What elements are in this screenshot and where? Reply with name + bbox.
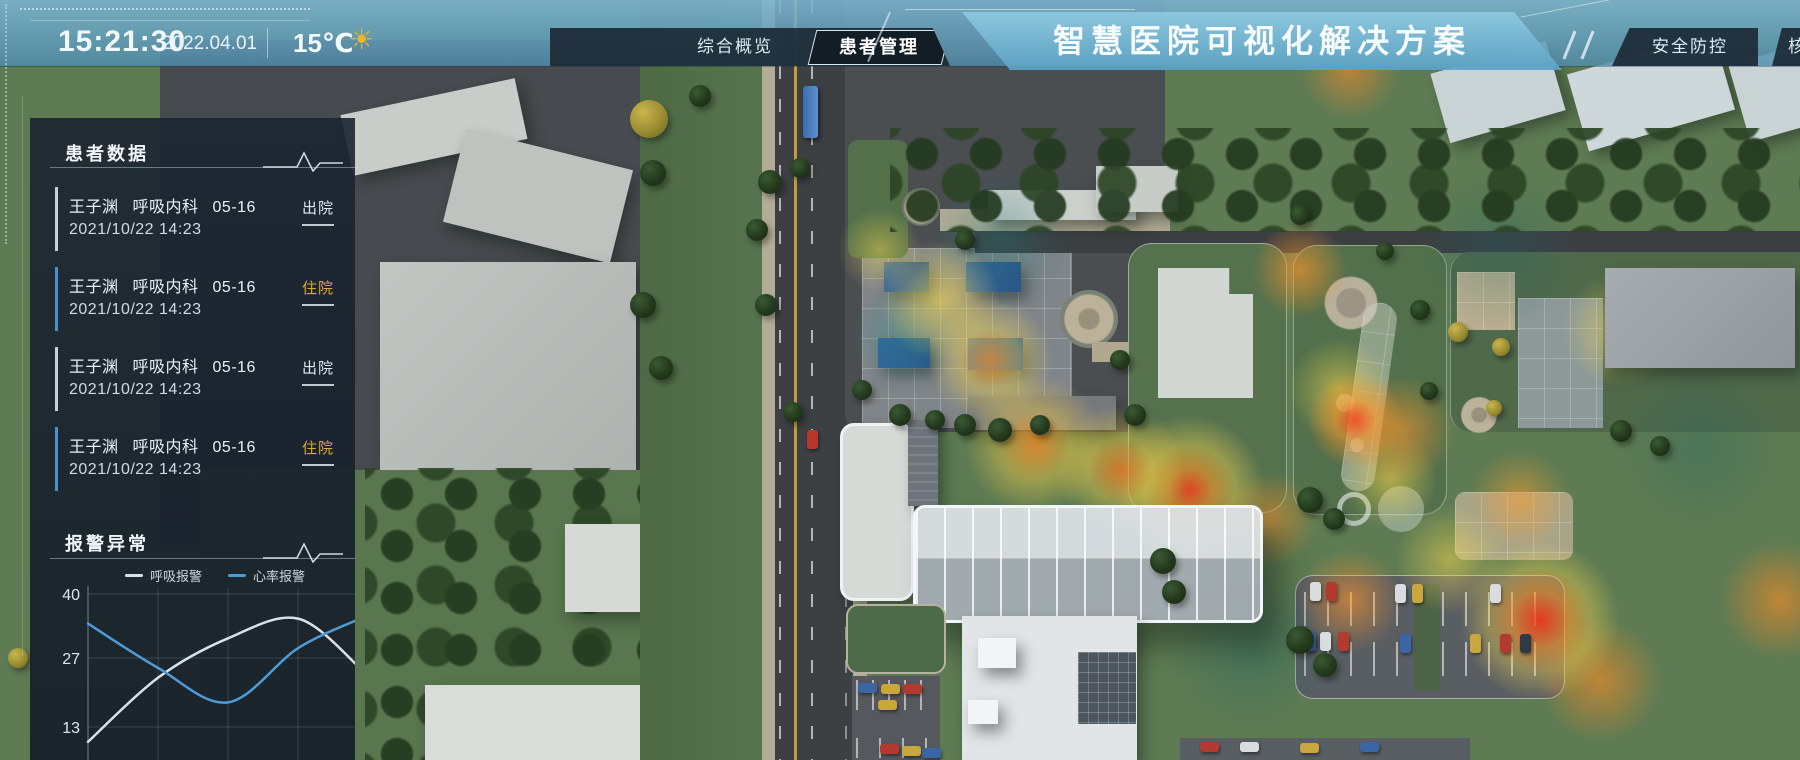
temperature-value: 15℃ <box>293 28 353 59</box>
map-building-l <box>1605 268 1795 368</box>
svg-text:40: 40 <box>62 587 80 604</box>
patient-time: 2021/10/22 14:23 <box>69 221 202 239</box>
patient-name: 王子渊 <box>69 199 119 216</box>
patient-dept: 呼吸内科 <box>133 359 199 376</box>
map-tree <box>1610 420 1632 442</box>
map-tree <box>1030 415 1050 435</box>
patient-list-item[interactable]: 王子渊呼吸内科05-16 2021/10/22 14:23 出院 <box>55 185 340 253</box>
decor-line <box>905 9 1135 10</box>
nav-bar-left: 综合概览 患者管理 <box>550 28 950 66</box>
map-car <box>1200 742 1219 752</box>
map-car <box>1490 584 1501 603</box>
patient-name: 王子渊 <box>69 279 119 296</box>
map-tree <box>1420 382 1438 400</box>
map-tree <box>1124 404 1146 426</box>
map-tree <box>852 380 872 400</box>
status-badge: 住院 <box>302 437 334 466</box>
clock-date: 2022.04.01 <box>162 33 257 55</box>
patient-dept: 呼吸内科 <box>133 199 199 216</box>
map-tree <box>1313 653 1337 677</box>
decor-line <box>1521 0 1610 18</box>
map-tile-lot <box>1455 492 1573 560</box>
left-data-panel: 患者数据 王子渊呼吸内科05-16 2021/10/22 14:23 出院 王子… <box>30 118 355 760</box>
map-tree <box>1323 508 1345 530</box>
ecg-pulse-icon <box>263 150 343 172</box>
map-tree <box>790 158 810 178</box>
map-car <box>1320 632 1331 651</box>
map-tile-grid <box>1518 298 1603 428</box>
map-car <box>1470 634 1481 653</box>
status-badge: 住院 <box>302 277 334 306</box>
tab-security[interactable]: 安全防控 <box>1630 28 1750 66</box>
decor-dotted-line <box>20 8 310 10</box>
map-tree <box>1376 242 1394 260</box>
map-car <box>1395 584 1406 603</box>
map-tree <box>649 356 673 380</box>
map-building-main <box>962 616 1137 760</box>
map-car <box>1310 582 1321 601</box>
map-tree <box>755 294 777 316</box>
map-woods-north <box>890 128 1800 232</box>
patient-bed: 05-16 <box>213 279 256 296</box>
patient-time: 2021/10/22 14:23 <box>69 381 202 399</box>
title-banner: 智慧医院可视化解决方案 <box>962 12 1562 70</box>
map-car <box>858 683 877 693</box>
nav-bar-right: 安全防控 <box>1612 28 1758 66</box>
map-tree-yellow <box>1492 338 1510 356</box>
map-tree-yellow <box>1486 400 1502 416</box>
map-car <box>1338 632 1349 651</box>
map-tree-yellow <box>630 100 668 138</box>
nav-bar-right-edge: 核 <box>1772 28 1800 66</box>
map-building-tower <box>908 420 938 506</box>
map-tree <box>988 418 1012 442</box>
ecg-pulse-icon <box>263 541 343 563</box>
tab-clipped[interactable]: 核 <box>1788 28 1800 66</box>
map-car <box>1500 634 1511 653</box>
map-tree <box>746 219 768 241</box>
top-header-bar: 15:21:30 2022.04.01 15℃ ☀ 综合概览 患者管理 智慧医院… <box>0 0 1800 66</box>
patient-list-item[interactable]: 王子渊呼吸内科05-16 2021/10/22 14:23 出院 <box>55 345 340 413</box>
map-tree <box>955 230 975 250</box>
map-fountain <box>1060 290 1118 348</box>
map-tree <box>925 410 945 430</box>
legend-dash-icon <box>228 574 246 577</box>
map-tree <box>1162 580 1186 604</box>
alarm-section-title: 报警异常 <box>65 530 149 556</box>
map-tree <box>1297 487 1323 513</box>
patient-bed: 05-16 <box>213 439 256 456</box>
status-badge: 出院 <box>302 357 334 386</box>
map-car <box>922 748 941 758</box>
map-tree <box>889 404 911 426</box>
map-building-slab-outlined <box>840 423 914 601</box>
status-badge: 出院 <box>302 197 334 226</box>
item-accent-bar <box>55 427 58 491</box>
alarm-line-chart: 402713 <box>30 580 355 760</box>
map-tree <box>1150 548 1176 574</box>
map-tree <box>1650 436 1670 456</box>
item-accent-bar <box>55 187 58 251</box>
map-tree <box>1410 300 1430 320</box>
map-tree <box>630 292 656 318</box>
decor-slash <box>1580 31 1594 60</box>
map-car <box>880 744 899 754</box>
map-solar-panel <box>966 262 1021 292</box>
patient-list-item[interactable]: 王子渊呼吸内科05-16 2021/10/22 14:23 住院 <box>55 425 340 493</box>
map-car <box>1412 584 1423 603</box>
patient-bed: 05-16 <box>213 359 256 376</box>
map-tree <box>783 402 803 422</box>
map-tree <box>689 85 711 107</box>
tab-overview[interactable]: 综合概览 <box>680 28 790 66</box>
decor-dotted-vline <box>5 4 7 244</box>
map-building <box>380 262 636 474</box>
map-car <box>878 700 897 710</box>
decor-vline <box>22 96 23 656</box>
map-car <box>881 684 900 694</box>
map-tree <box>1110 350 1130 370</box>
legend-dash-icon <box>125 574 143 577</box>
map-tree-yellow <box>8 648 28 668</box>
map-tree <box>1290 205 1310 225</box>
map-bus <box>803 86 818 138</box>
map-tree <box>758 170 782 194</box>
map-park <box>1293 245 1447 515</box>
decor-line <box>30 20 310 21</box>
map-playground-circle <box>1378 486 1424 532</box>
patient-bed: 05-16 <box>213 199 256 216</box>
page-title: 智慧医院可视化解决方案 <box>962 12 1562 70</box>
map-car <box>1326 582 1337 601</box>
map-car <box>1360 742 1379 752</box>
patient-dept: 呼吸内科 <box>133 279 199 296</box>
item-accent-bar <box>55 347 58 411</box>
smart-hospital-dashboard: 15:21:30 2022.04.01 15℃ ☀ 综合概览 患者管理 智慧医院… <box>0 0 1800 760</box>
patient-name: 王子渊 <box>69 439 119 456</box>
map-building-glass-canopy[interactable] <box>913 505 1263 623</box>
map-tree-yellow <box>1448 322 1468 342</box>
map-car <box>1300 743 1319 753</box>
map-car <box>1400 634 1411 653</box>
patient-time: 2021/10/22 14:23 <box>69 301 202 319</box>
map-solar-panel <box>968 338 1023 370</box>
map-tree <box>1286 626 1314 654</box>
map-solar-panel <box>884 262 929 292</box>
map-car <box>1520 634 1531 653</box>
map-solar-panel <box>878 338 930 368</box>
patient-data-title: 患者数据 <box>65 140 149 166</box>
patient-list-item[interactable]: 王子渊呼吸内科05-16 2021/10/22 14:23 住院 <box>55 265 340 333</box>
item-accent-bar <box>55 267 58 331</box>
patient-name: 王子渊 <box>69 359 119 376</box>
map-tile-square <box>1457 272 1515 330</box>
decor-slash <box>1562 31 1576 60</box>
patient-time: 2021/10/22 14:23 <box>69 461 202 479</box>
map-car <box>902 746 921 756</box>
map-car <box>807 430 818 449</box>
map-car <box>903 684 922 694</box>
header-divider <box>267 28 268 58</box>
map-car <box>1240 742 1259 752</box>
map-building <box>425 685 671 760</box>
map-parking-strip <box>1180 738 1470 760</box>
map-tree <box>640 160 666 186</box>
map-tree <box>954 414 976 436</box>
patient-dept: 呼吸内科 <box>133 439 199 456</box>
map-grass-knoll <box>846 604 946 674</box>
svg-text:13: 13 <box>62 720 80 737</box>
sun-weather-icon: ☀ <box>349 26 374 54</box>
svg-text:27: 27 <box>62 651 80 668</box>
